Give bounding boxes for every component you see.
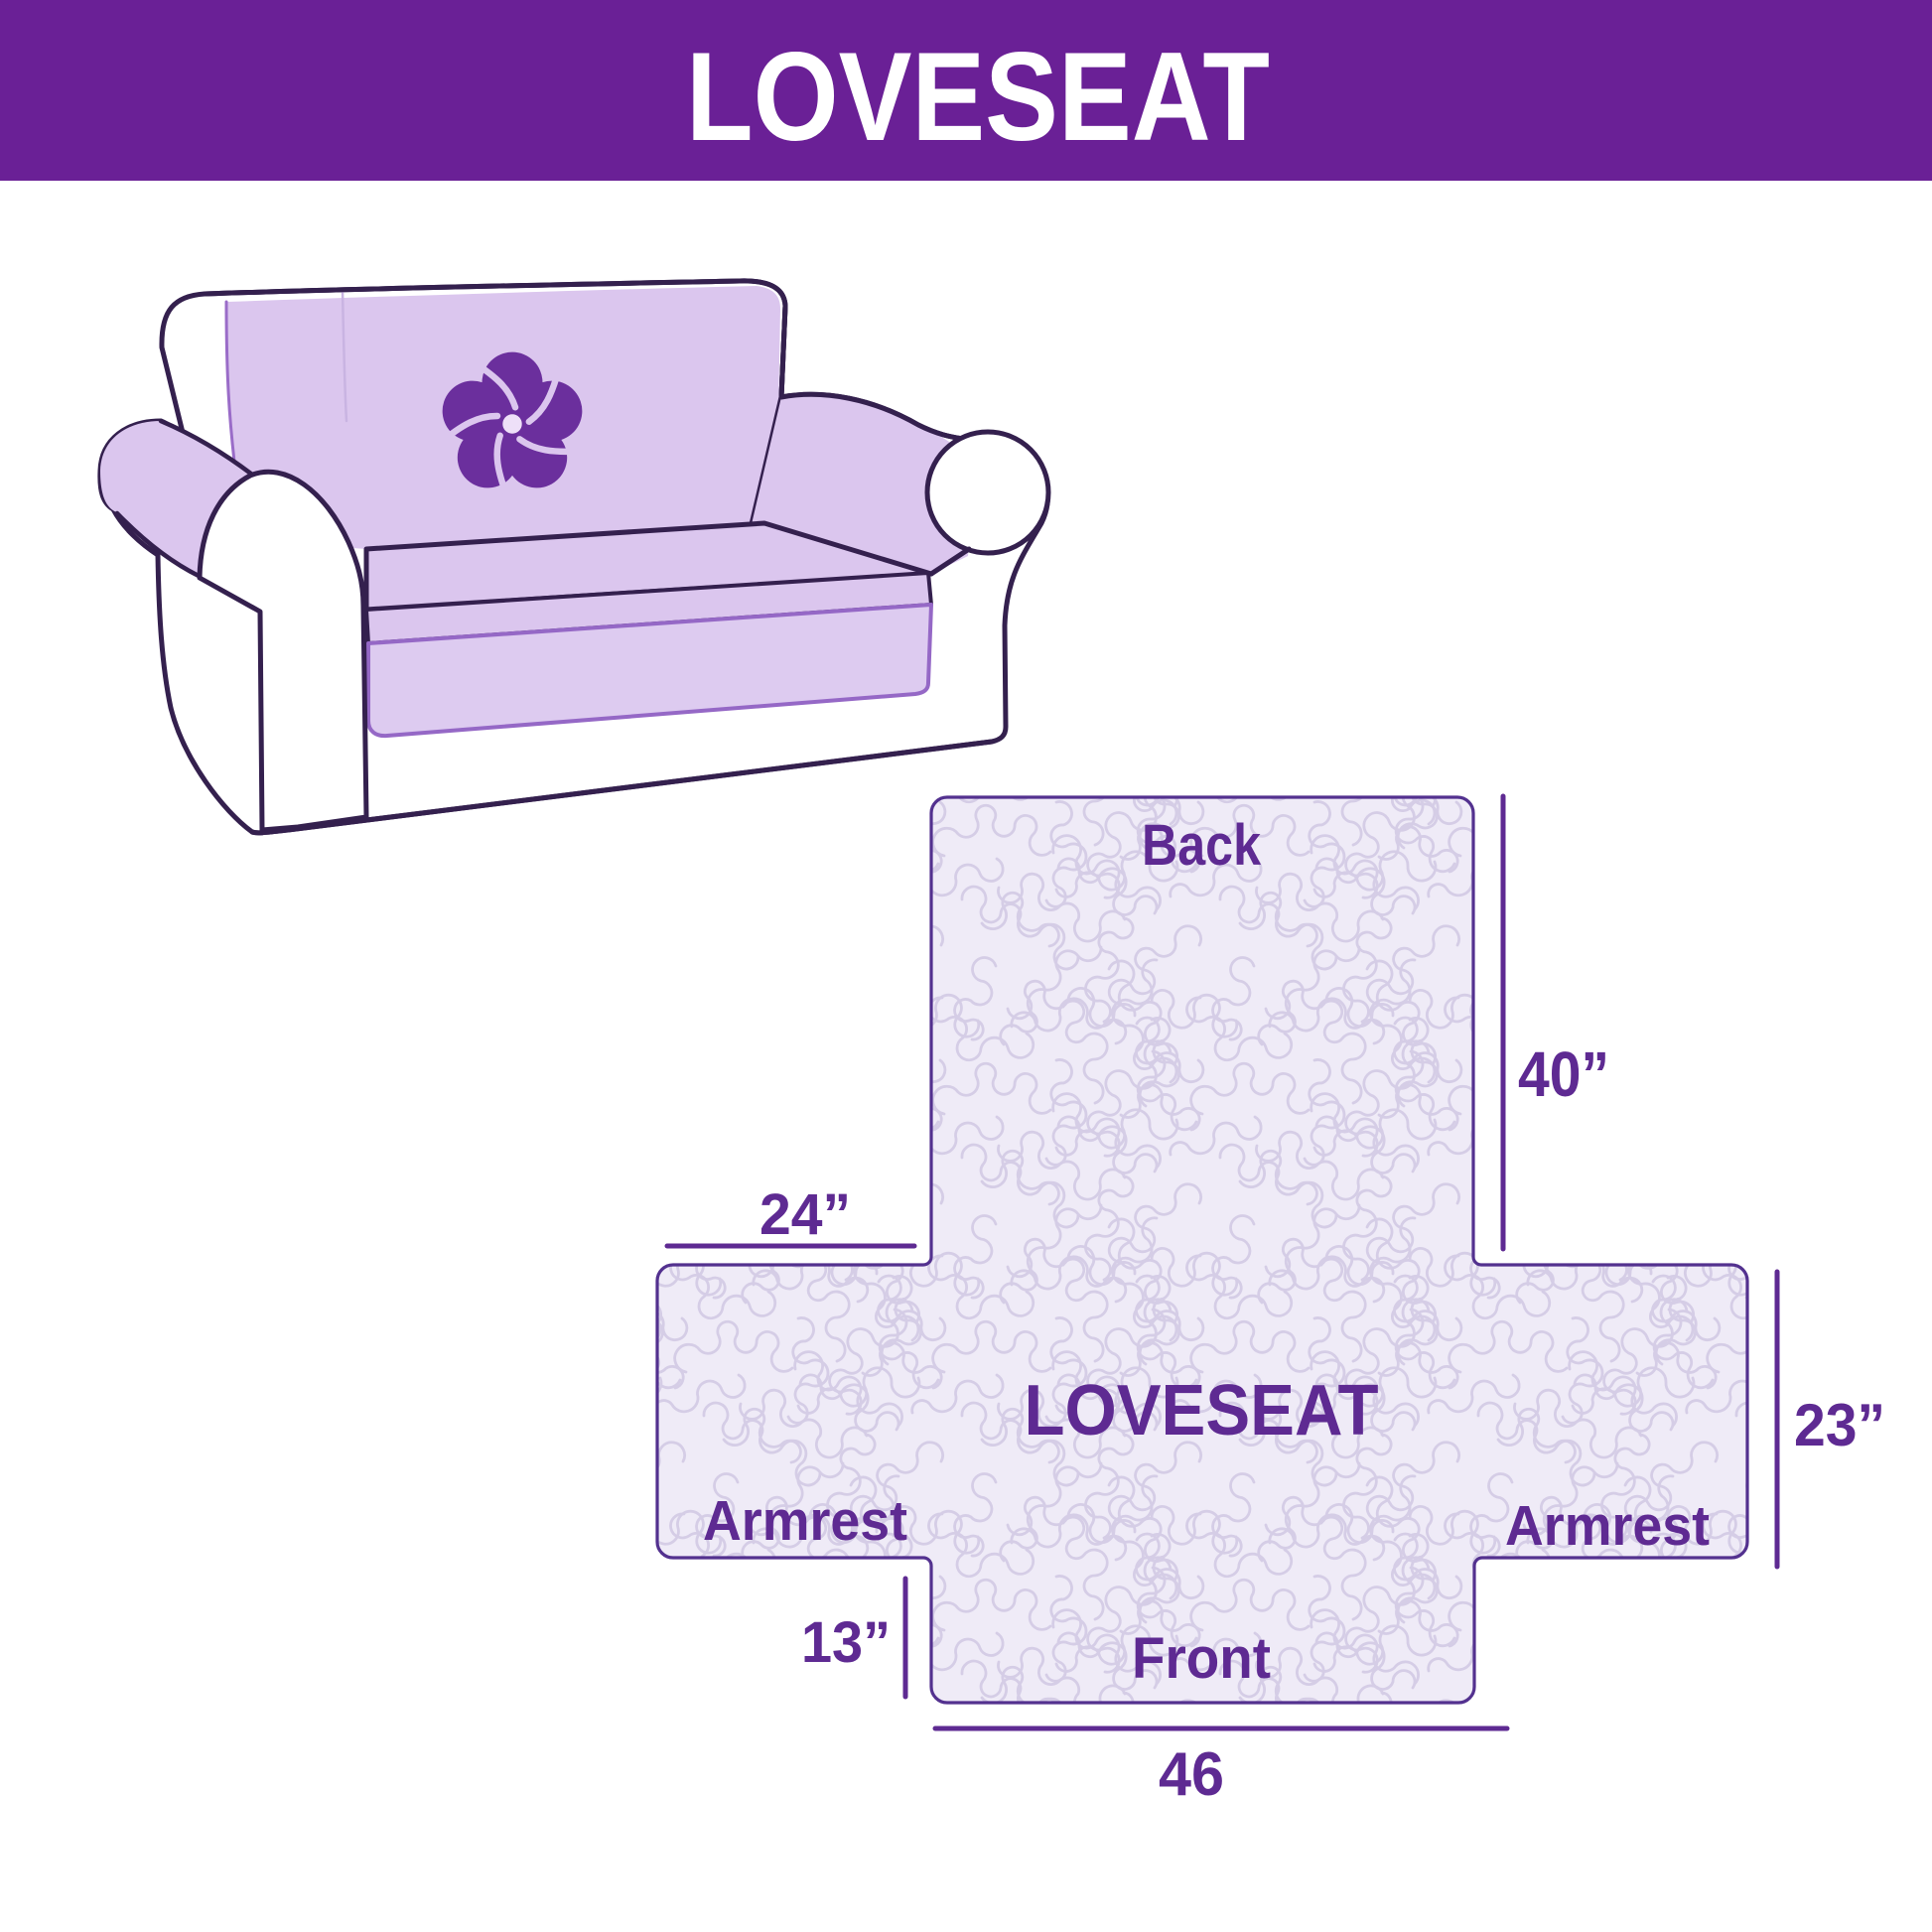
svg-text:23”: 23” [1794, 1392, 1885, 1458]
svg-text:Back: Back [1142, 813, 1262, 878]
svg-text:13”: 13” [801, 1610, 891, 1675]
svg-text:Armrest: Armrest [703, 1489, 907, 1553]
svg-text:46: 46 [1159, 1740, 1224, 1809]
svg-text:24”: 24” [759, 1182, 851, 1247]
svg-text:Armrest: Armrest [1505, 1494, 1710, 1558]
svg-text:40”: 40” [1518, 1038, 1609, 1110]
svg-text:LOVESEAT: LOVESEAT [1025, 1371, 1379, 1450]
svg-text:LOVESEAT: LOVESEAT [686, 26, 1270, 167]
svg-text:Front: Front [1132, 1626, 1271, 1691]
